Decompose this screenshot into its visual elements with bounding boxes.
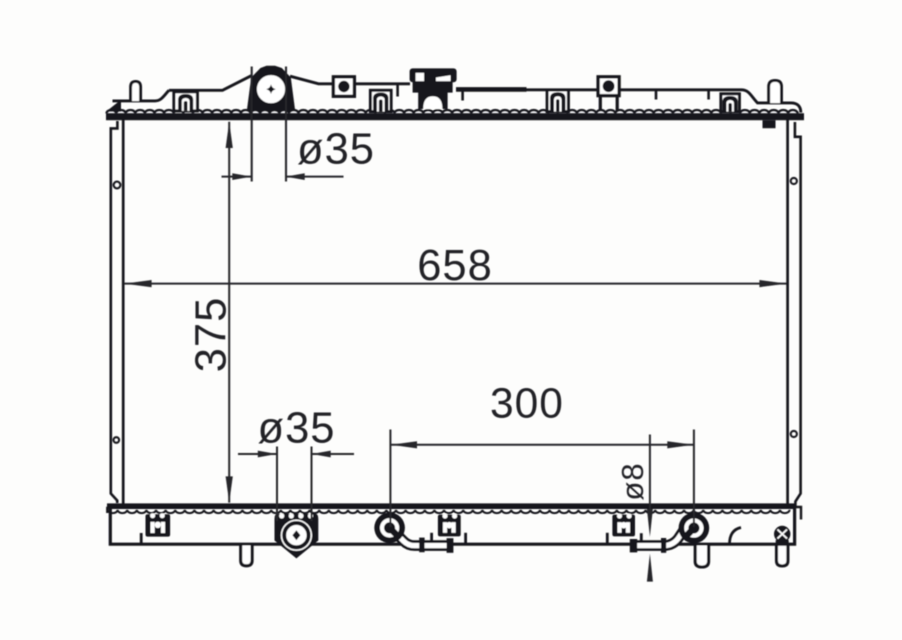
svg-text:658: 658: [417, 242, 493, 290]
svg-text:300: 300: [490, 381, 564, 428]
svg-text:ø35: ø35: [297, 126, 375, 174]
svg-text:375: 375: [188, 297, 236, 373]
svg-text:ø35: ø35: [258, 405, 336, 453]
svg-text:ø8: ø8: [615, 462, 650, 500]
